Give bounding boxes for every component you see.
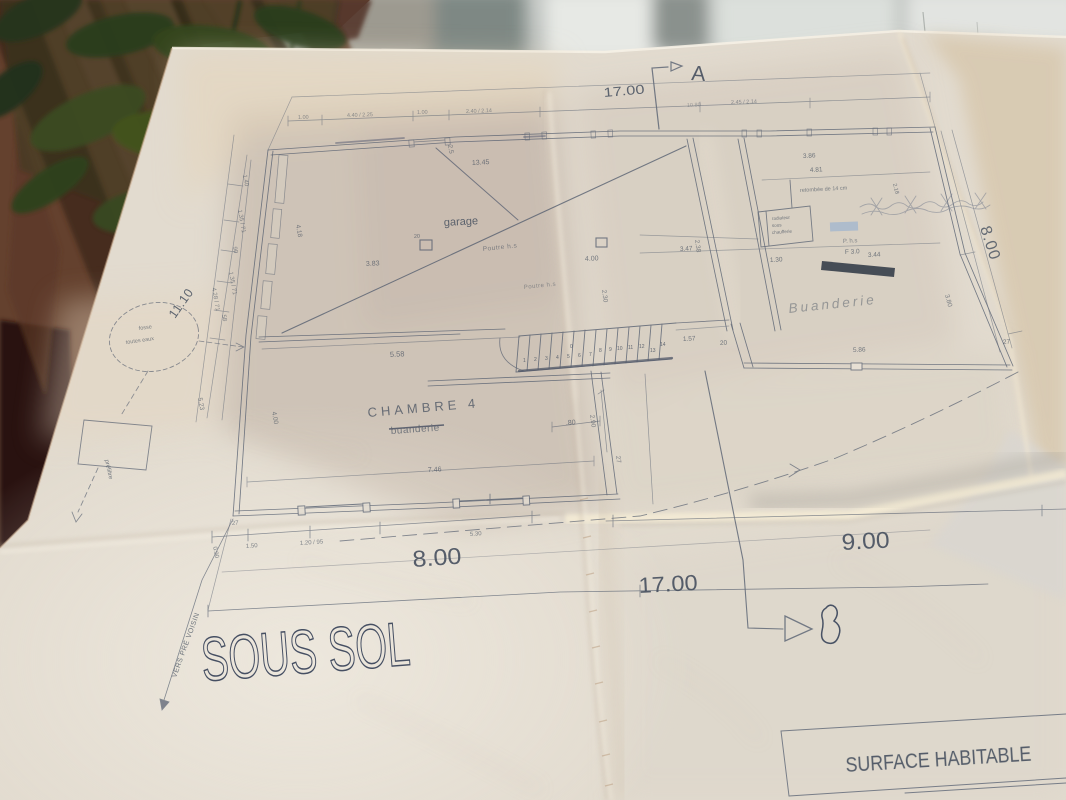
svg-text:A: A <box>691 62 707 86</box>
svg-text:7: 7 <box>589 352 592 358</box>
svg-text:sous: sous <box>772 222 783 228</box>
svg-text:6: 6 <box>578 353 581 359</box>
svg-text:1.30: 1.30 <box>770 256 783 264</box>
svg-text:0: 0 <box>570 344 573 350</box>
svg-text:3: 3 <box>545 356 548 362</box>
svg-text:garage: garage <box>444 215 479 229</box>
svg-text:10: 10 <box>617 346 623 352</box>
svg-text:5: 5 <box>567 354 570 360</box>
svg-text:11: 11 <box>628 345 633 351</box>
svg-text:2.45 / 2.14: 2.45 / 2.14 <box>731 99 757 106</box>
svg-text:1.50: 1.50 <box>246 543 259 550</box>
svg-text:27: 27 <box>1003 339 1011 346</box>
svg-text:4.00: 4.00 <box>585 255 599 263</box>
svg-text:3.47: 3.47 <box>680 245 693 253</box>
svg-text:8: 8 <box>599 348 602 354</box>
svg-text:8.00: 8.00 <box>412 543 463 572</box>
svg-text:12: 12 <box>639 344 645 350</box>
svg-text:7.46: 7.46 <box>428 466 442 474</box>
svg-text:14: 14 <box>660 342 666 348</box>
svg-text:3.44: 3.44 <box>868 251 881 259</box>
svg-text:4: 4 <box>556 355 559 361</box>
svg-text:27: 27 <box>232 520 240 526</box>
svg-text:1.57: 1.57 <box>683 335 696 343</box>
svg-text:9.00: 9.00 <box>841 527 890 555</box>
svg-text:2: 2 <box>534 357 537 363</box>
svg-text:1.00: 1.00 <box>417 110 428 116</box>
svg-text:5.58: 5.58 <box>390 349 405 359</box>
svg-text:9: 9 <box>609 347 612 353</box>
svg-text:13: 13 <box>650 348 656 354</box>
svg-text:20: 20 <box>720 340 728 347</box>
svg-text:10.80: 10.80 <box>687 102 701 109</box>
svg-text:5.86: 5.86 <box>853 347 866 354</box>
svg-text:27: 27 <box>614 455 622 464</box>
svg-text:20: 20 <box>414 234 420 240</box>
svg-text:5.30: 5.30 <box>470 531 483 538</box>
svg-text:4.40 / 2.25: 4.40 / 2.25 <box>347 112 373 119</box>
svg-text:1: 1 <box>523 358 526 364</box>
svg-text:3.83: 3.83 <box>366 260 380 268</box>
svg-text:1.00: 1.00 <box>298 115 309 121</box>
svg-text:4.81: 4.81 <box>810 166 823 174</box>
svg-text:.80: .80 <box>566 419 576 427</box>
svg-text:2.40 / 2.14: 2.40 / 2.14 <box>466 108 492 115</box>
svg-text:P. h.s: P. h.s <box>843 238 858 245</box>
svg-text:F 3.0: F 3.0 <box>845 248 861 256</box>
svg-text:17.00: 17.00 <box>638 570 698 598</box>
svg-text:3.86: 3.86 <box>803 152 816 160</box>
svg-text:13.45: 13.45 <box>472 159 490 167</box>
